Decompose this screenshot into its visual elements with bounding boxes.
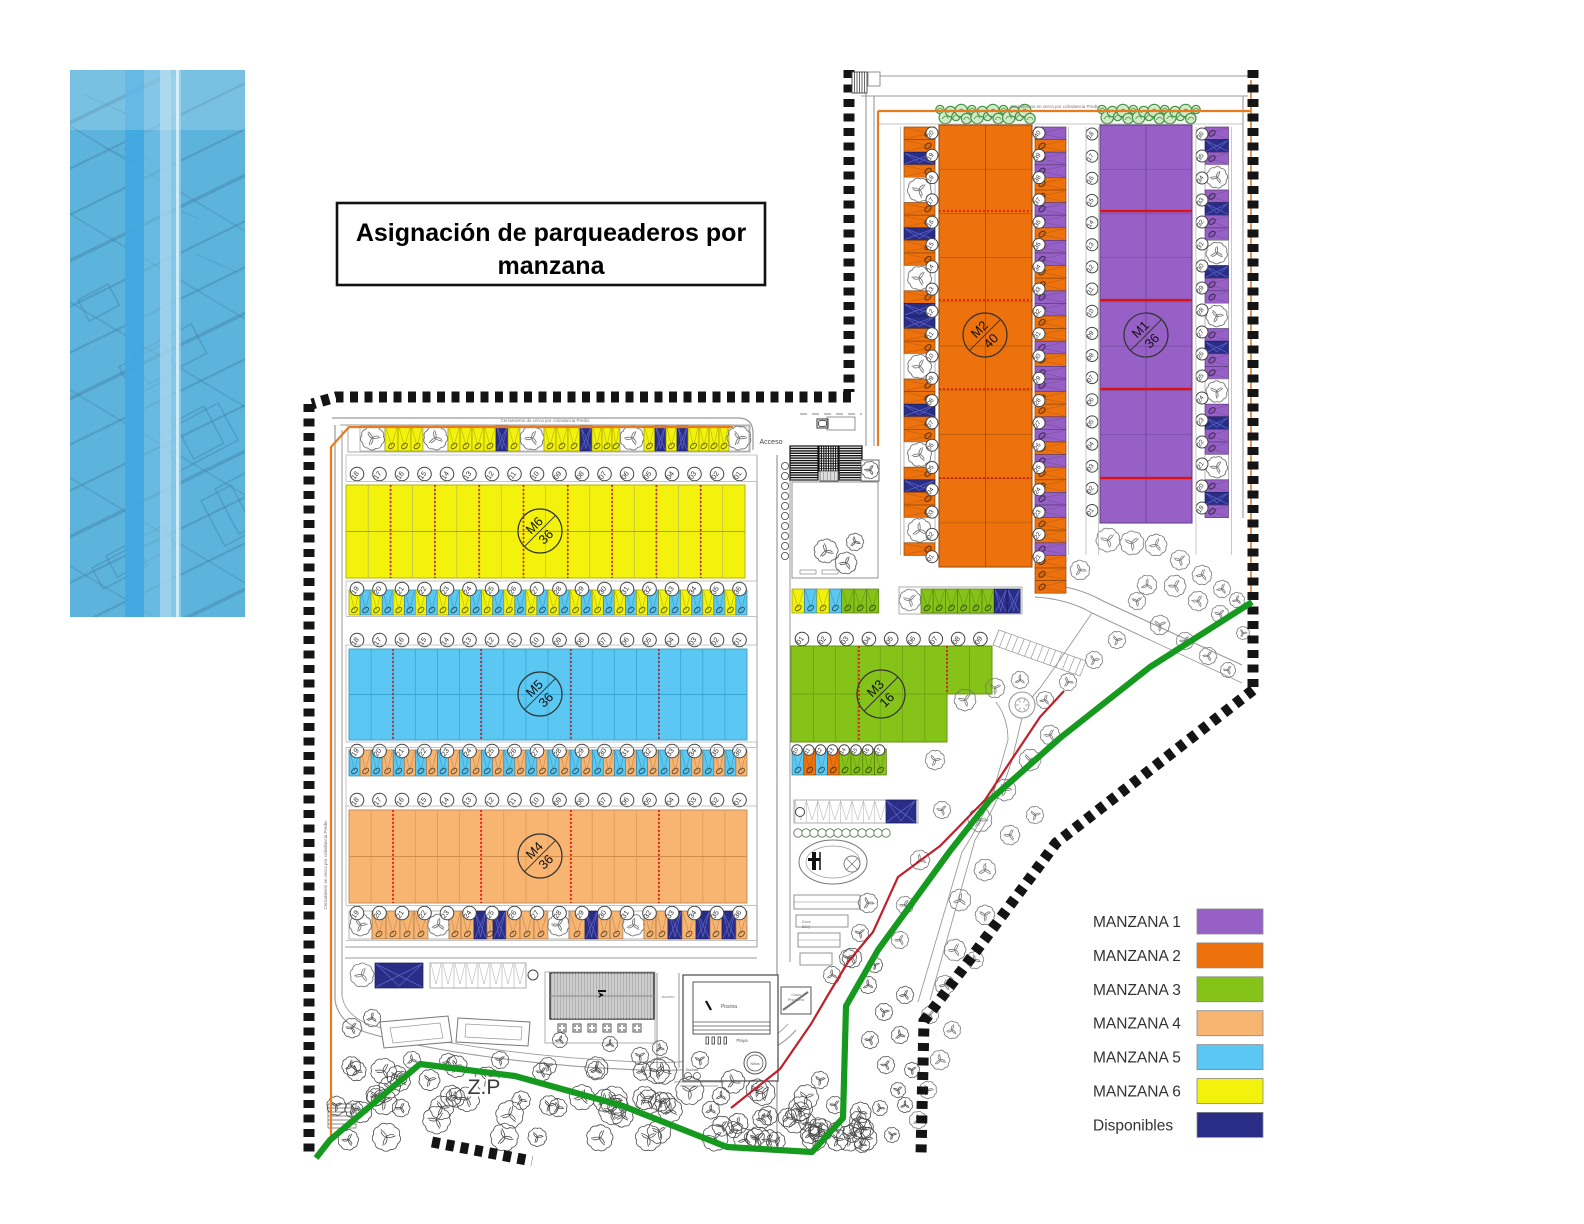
svg-text:manzana: manzana: [498, 252, 606, 280]
svg-text:Z.P: Z.P: [468, 1076, 501, 1099]
svg-text:Disponibles: Disponibles: [1093, 1117, 1173, 1134]
svg-text:Acceso: Acceso: [760, 439, 783, 446]
svg-text:Playa: Playa: [736, 1038, 748, 1043]
svg-text:MANZANA 5: MANZANA 5: [1093, 1050, 1181, 1067]
svg-text:Niños: Niños: [751, 1062, 760, 1066]
svg-text:Cerramiento en cerca por colin: Cerramiento en cerca por colindancia Pre…: [1010, 104, 1100, 109]
svg-text:MANZANA 6: MANZANA 6: [1093, 1084, 1181, 1101]
svg-text:MANZANA 2: MANZANA 2: [1093, 948, 1181, 965]
svg-text:MANZANA 4: MANZANA 4: [1093, 1016, 1181, 1033]
svg-text:Asignación de parqueaderos por: Asignación de parqueaderos por: [356, 219, 747, 247]
svg-text:Piscinera: Piscinera: [788, 997, 805, 1002]
svg-text:Duchas: Duchas: [686, 1068, 699, 1072]
svg-text:Cerramiento de cerca por colin: Cerramiento de cerca por colindancia Pre…: [500, 418, 590, 423]
svg-text:Cerramiento en cerca por colin: Cerramiento en cerca por colindancia Pre…: [323, 820, 328, 910]
svg-text:MANZANA 1: MANZANA 1: [1093, 914, 1181, 931]
svg-text:Acceso: Acceso: [661, 994, 675, 999]
svg-text:BBQ: BBQ: [802, 924, 810, 929]
svg-text:MANZANA 3: MANZANA 3: [1093, 982, 1181, 999]
svg-text:Piscina: Piscina: [721, 1004, 737, 1010]
